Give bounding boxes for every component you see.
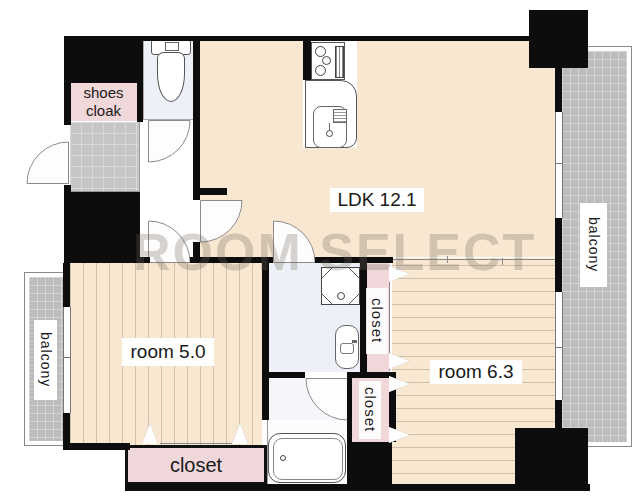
room5-label: room 5.0 xyxy=(122,338,214,366)
wall xyxy=(63,443,130,450)
door-arrow-icon xyxy=(142,423,158,444)
entrance-tile xyxy=(70,122,140,192)
watermark: ROOM SELECT xyxy=(133,222,536,282)
closet-lower-label: closet xyxy=(359,381,381,439)
wall-block xyxy=(515,428,588,487)
entrance-door-icon xyxy=(26,141,69,184)
wall xyxy=(555,400,562,428)
door-arrow-icon xyxy=(389,376,410,392)
wall xyxy=(303,41,311,80)
balcony-left-label: balcony xyxy=(34,320,57,400)
wall xyxy=(262,263,269,420)
wall-block xyxy=(68,192,140,263)
door-arrow-icon xyxy=(232,423,248,444)
bath-door-icon xyxy=(305,378,348,421)
vanity-sink-icon xyxy=(335,325,359,369)
window-mullion xyxy=(63,357,71,358)
toilet-door-icon xyxy=(148,120,191,163)
wall xyxy=(267,372,305,378)
window xyxy=(63,307,71,413)
floor-plan: ROOM SELECT LDK 12.1 room 5.0 room 6.3 s… xyxy=(0,0,640,498)
wall xyxy=(555,41,562,112)
window-mullion xyxy=(555,347,563,348)
wall xyxy=(137,83,143,122)
closet-bottom-label: closet xyxy=(125,445,267,485)
wall xyxy=(555,218,562,292)
wall xyxy=(197,188,227,195)
wall xyxy=(193,36,200,200)
ldk-label: LDK 12.1 xyxy=(330,188,424,212)
room6-label: room 6.3 xyxy=(430,360,522,384)
window-mullion xyxy=(555,163,563,164)
stove-icon xyxy=(311,42,345,80)
closet-door-track xyxy=(160,443,232,444)
window xyxy=(555,112,563,218)
shoes-cloak-label-line1: shoes xyxy=(83,84,123,102)
wall xyxy=(63,263,70,307)
door-arrow-icon xyxy=(389,353,410,369)
wall-block xyxy=(347,442,392,487)
wall xyxy=(347,378,352,442)
wall-block xyxy=(68,36,143,83)
door-arrow-icon xyxy=(389,427,410,443)
kitchen-sink-icon xyxy=(313,106,347,148)
shoes-cloak-label: shoes cloak xyxy=(70,83,137,121)
balcony-right-label: balcony xyxy=(580,203,607,287)
shoes-cloak-label-line2: cloak xyxy=(86,102,121,120)
closet-upper-label: closet xyxy=(366,288,388,354)
bathtub-icon xyxy=(268,433,346,483)
window xyxy=(555,292,563,400)
